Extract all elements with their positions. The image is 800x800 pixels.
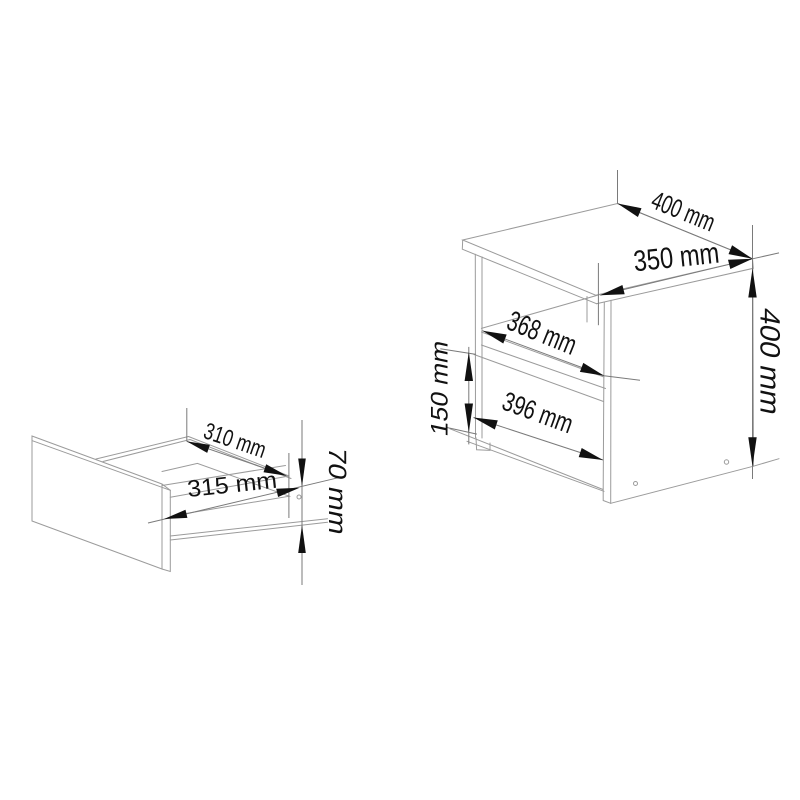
svg-text:400 mm: 400 mm xyxy=(755,306,787,419)
svg-text:150 mm: 150 mm xyxy=(427,338,454,439)
svg-text:70 mm: 70 mm xyxy=(323,445,351,538)
